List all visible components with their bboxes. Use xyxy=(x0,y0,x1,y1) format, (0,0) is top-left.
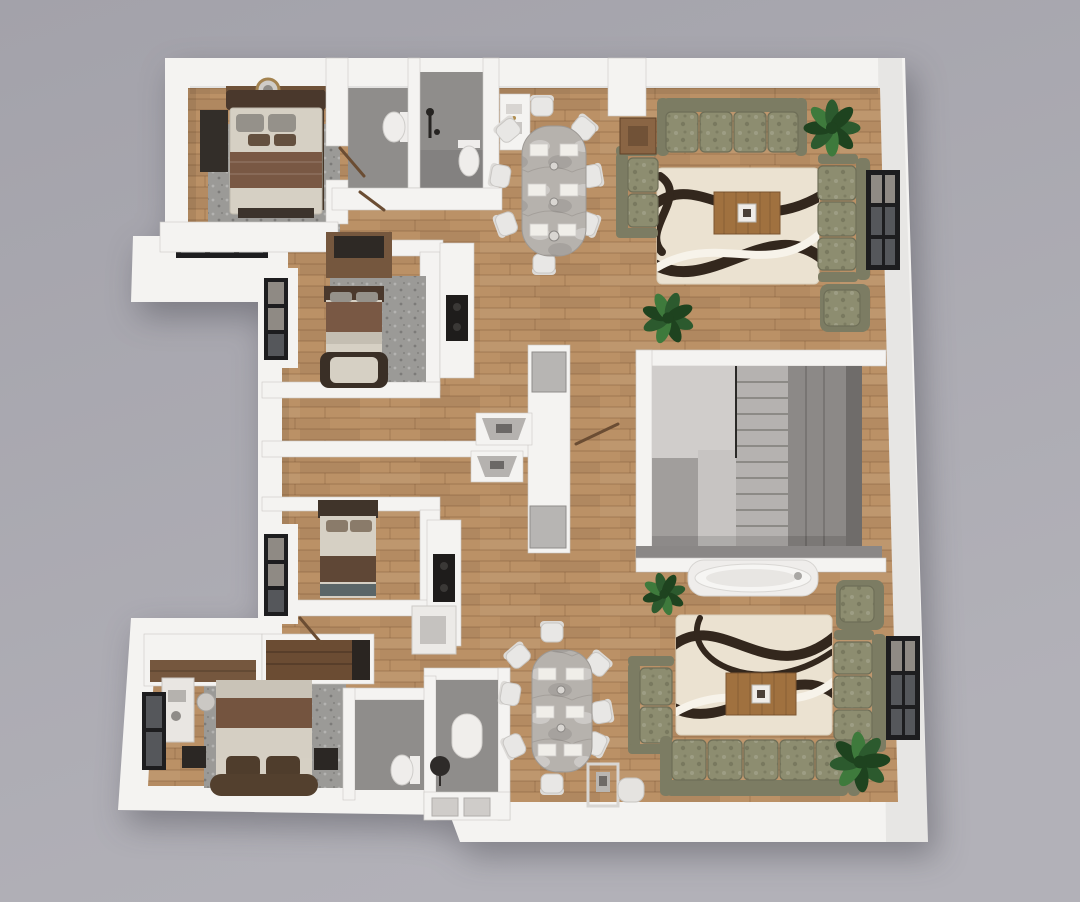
wardrobe-top xyxy=(334,236,384,258)
sofa-cushion xyxy=(744,740,778,780)
sofa-cushion xyxy=(834,676,872,708)
sofa-cushion xyxy=(818,166,856,200)
table-item xyxy=(599,776,607,786)
window-glass xyxy=(268,282,284,304)
coffee-table-lower xyxy=(726,673,796,715)
sofa-cushion xyxy=(666,112,698,152)
stair-flight xyxy=(736,366,788,546)
sofa-cushion xyxy=(708,740,742,780)
wall xyxy=(332,188,502,210)
window-glass xyxy=(905,641,915,671)
dining-chair xyxy=(487,162,512,189)
toilet xyxy=(391,755,420,785)
sofa-cushion xyxy=(780,740,814,780)
appliance xyxy=(532,352,566,392)
sofa-back xyxy=(616,152,628,236)
placemat xyxy=(530,144,548,156)
bed-1-accent-pillow xyxy=(274,134,296,146)
bed-1-pillow xyxy=(236,114,264,132)
bed-1-pillow xyxy=(268,114,296,132)
toilet-bowl xyxy=(459,146,479,176)
placemat xyxy=(560,144,578,156)
potted-plant xyxy=(804,100,861,157)
placemat xyxy=(564,744,582,756)
sofa-arm xyxy=(834,630,874,640)
window-glass xyxy=(268,564,284,586)
placemat xyxy=(538,668,556,680)
placemat xyxy=(560,184,578,196)
placemat xyxy=(558,224,576,236)
placemat xyxy=(530,224,548,236)
window-glass xyxy=(885,175,895,203)
desk-stool xyxy=(197,693,215,711)
bed-4-headboard xyxy=(210,774,318,796)
bed-1-headboard xyxy=(226,90,326,110)
tub-faucet xyxy=(794,572,802,580)
stair-wall-bottom-shade xyxy=(636,546,882,559)
burner xyxy=(453,303,461,311)
sofa-back xyxy=(663,98,801,112)
sofa-back xyxy=(872,634,886,752)
bed-2-blanket xyxy=(326,302,382,332)
wall-basin-upper xyxy=(476,413,532,445)
shelf-slot xyxy=(464,798,490,816)
coffee-table-upper xyxy=(714,192,780,234)
stair-bottom-shadow xyxy=(652,536,846,546)
sofa-top xyxy=(657,98,807,156)
sofa-cushion xyxy=(700,112,732,152)
placemat xyxy=(528,184,546,196)
window-glass xyxy=(146,696,162,728)
table-decor xyxy=(550,198,558,206)
vanity-lower xyxy=(412,606,456,654)
sofa-right xyxy=(818,154,870,282)
bed-4-fold xyxy=(216,680,312,698)
dining-chair xyxy=(540,621,564,642)
burner xyxy=(440,562,448,570)
wall xyxy=(160,222,338,252)
tray-item xyxy=(757,690,765,698)
toilet-bowl xyxy=(391,755,413,785)
vanity-items xyxy=(506,104,522,114)
sofa-cushion xyxy=(768,112,798,152)
bed-2 xyxy=(320,286,388,388)
toilet xyxy=(458,140,480,176)
window-glass xyxy=(268,590,284,612)
sofa-back xyxy=(628,662,640,752)
window-glass xyxy=(871,207,882,235)
sofa-cushion xyxy=(834,642,872,674)
dining-chair xyxy=(530,95,554,116)
sofa-cushion xyxy=(818,238,856,270)
armchair-lower xyxy=(836,580,884,630)
bedroom-3-window-bay xyxy=(258,524,298,624)
bed-2-pillow xyxy=(330,292,352,302)
sofa-cushion xyxy=(628,158,658,192)
desk-top xyxy=(162,678,194,742)
stair-platform-dark xyxy=(788,366,846,546)
flight-base xyxy=(736,366,788,546)
bedroom-2-window-bay xyxy=(258,268,298,368)
dining-chair xyxy=(532,254,556,275)
tray-item xyxy=(743,209,751,217)
table-decor xyxy=(550,162,558,170)
nightstand xyxy=(314,748,338,770)
arch-panel xyxy=(452,714,482,758)
toilet-bowl xyxy=(383,112,405,142)
table-decor xyxy=(557,724,565,732)
basin-drain xyxy=(490,461,504,469)
bath-stool xyxy=(430,756,450,776)
window-right-upper xyxy=(866,170,900,270)
vanity-basin xyxy=(420,616,446,644)
sofa-cushion xyxy=(834,710,872,740)
bed-3-headboard xyxy=(318,500,378,518)
armchair-upper xyxy=(820,284,870,332)
stair-wall-left xyxy=(636,350,652,562)
placemat xyxy=(566,706,584,718)
burner xyxy=(440,584,448,592)
dining-chair xyxy=(540,774,564,795)
window-glass xyxy=(268,308,284,330)
bed-3-blanket xyxy=(320,556,376,582)
desk-item xyxy=(168,690,186,702)
floor-plan-render xyxy=(0,0,1080,902)
window-glass xyxy=(891,641,902,671)
armchair-cushion xyxy=(840,586,874,622)
wall xyxy=(343,688,436,700)
wall xyxy=(408,58,420,188)
sofa-cushion xyxy=(672,740,706,780)
side-table-upper xyxy=(620,118,656,154)
sofa-arm xyxy=(818,154,858,164)
appliance xyxy=(530,506,566,548)
stair-side-shadow xyxy=(846,366,862,546)
wardrobe-cabinet xyxy=(326,232,392,278)
ottoman xyxy=(618,778,644,802)
wall-basin-lower xyxy=(471,451,523,482)
bedroom-1-wardrobe xyxy=(200,110,228,172)
desk-item xyxy=(171,711,181,721)
loveseat-upper xyxy=(616,146,658,238)
window-glass xyxy=(905,675,915,705)
table-decor xyxy=(549,231,559,241)
window-glass xyxy=(871,239,882,265)
basin-drain xyxy=(496,424,512,433)
kitchen-counter-upper xyxy=(440,243,474,378)
bathtub-basin xyxy=(706,569,796,587)
window-right-lower xyxy=(886,636,920,740)
wall xyxy=(326,58,348,146)
wall xyxy=(608,58,646,116)
window-glass xyxy=(146,732,162,766)
sofa-arm xyxy=(818,272,858,282)
sofa-cushion xyxy=(640,668,672,705)
bed-3-pillow xyxy=(350,520,372,532)
stair-landing-upper xyxy=(652,366,736,458)
window-glass xyxy=(885,207,895,235)
window-glass xyxy=(905,709,915,735)
bed-3-foot-throw xyxy=(320,584,376,596)
sofa-arm xyxy=(616,228,658,238)
bed-1-accent-pillow xyxy=(248,134,270,146)
window-glass xyxy=(885,239,895,265)
bed-2-armchair-cushion xyxy=(330,357,378,383)
window-glass xyxy=(268,334,284,356)
table-decor xyxy=(557,686,565,694)
bed-1-blanket xyxy=(230,152,322,188)
bed-3-pillow xyxy=(326,520,348,532)
sofa-arm xyxy=(628,656,674,666)
cooktop xyxy=(433,554,455,602)
bedroom-4-window xyxy=(142,692,166,770)
sofa-bottom xyxy=(660,736,860,796)
shower-panel xyxy=(452,714,482,758)
wall-shadow-left xyxy=(188,88,196,228)
bed-4-blanket xyxy=(216,698,312,728)
floor-plan-svg xyxy=(0,0,1080,902)
armchair-cushion xyxy=(824,290,860,326)
sofa-cushion xyxy=(734,112,766,152)
window-glass xyxy=(268,538,284,560)
cooktop xyxy=(446,295,468,341)
wardrobe-end xyxy=(352,640,370,680)
side-table-shelf xyxy=(628,126,648,146)
dining-chair xyxy=(497,680,522,707)
bed-1-foot-bench xyxy=(238,208,314,218)
bed-2-band xyxy=(326,332,382,344)
sofa-cushion xyxy=(628,194,658,227)
placemat xyxy=(536,706,554,718)
wall xyxy=(424,668,510,680)
placemat xyxy=(538,744,556,756)
shelf-unit xyxy=(424,792,510,820)
sofa-back xyxy=(666,780,848,796)
window-glass xyxy=(891,709,902,735)
bed-1 xyxy=(226,90,326,218)
bed-3 xyxy=(318,500,378,598)
toilet xyxy=(383,112,409,142)
burner xyxy=(453,323,461,331)
shelf-slot xyxy=(432,798,458,816)
wall xyxy=(343,688,355,800)
window-glass xyxy=(871,175,882,203)
nightstand xyxy=(182,746,206,768)
placemat xyxy=(566,668,584,680)
window-glass xyxy=(891,675,902,705)
stair-wall-top xyxy=(636,350,886,366)
sofa-cushion xyxy=(818,202,856,236)
bed-4-sheet xyxy=(216,728,312,758)
dining-chair xyxy=(590,698,615,725)
bed-2-pillow xyxy=(356,292,378,302)
